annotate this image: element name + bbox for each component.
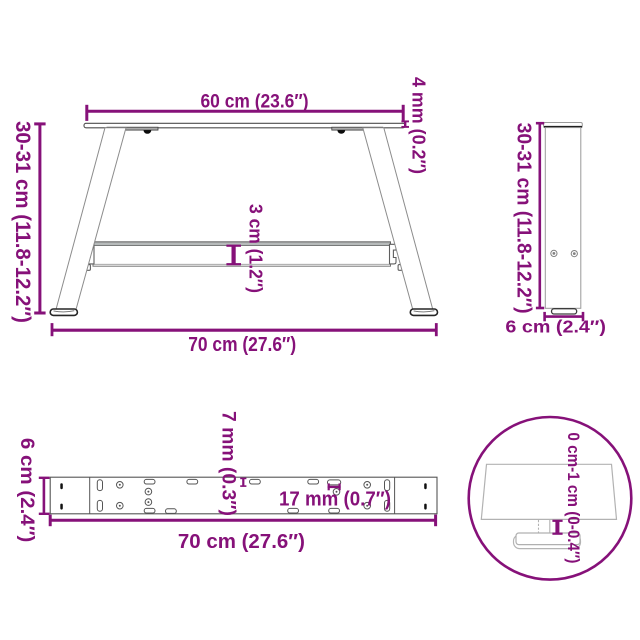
svg-text:0 cm-1 cm (0-0.4″): 0 cm-1 cm (0-0.4″)	[564, 432, 583, 563]
svg-text:7 mm (0.3″): 7 mm (0.3″)	[218, 411, 239, 516]
svg-text:60 cm (23.6″): 60 cm (23.6″)	[201, 91, 309, 112]
svg-text:70 cm (27.6″): 70 cm (27.6″)	[188, 334, 296, 356]
svg-text:30-31 cm (11.8-12.2″): 30-31 cm (11.8-12.2″)	[11, 121, 35, 323]
svg-text:30-31 cm (11.8-12.2″): 30-31 cm (11.8-12.2″)	[512, 123, 534, 314]
svg-text:17 mm (0.7″): 17 mm (0.7″)	[279, 488, 391, 510]
svg-text:6 cm (2.4″): 6 cm (2.4″)	[16, 438, 38, 542]
svg-text:3 cm (1.2″): 3 cm (1.2″)	[246, 204, 266, 293]
svg-text:70 cm (27.6″): 70 cm (27.6″)	[178, 531, 305, 553]
svg-text:4 mm (0.2″): 4 mm (0.2″)	[409, 77, 429, 174]
svg-text:6 cm (2.4″): 6 cm (2.4″)	[505, 317, 606, 337]
